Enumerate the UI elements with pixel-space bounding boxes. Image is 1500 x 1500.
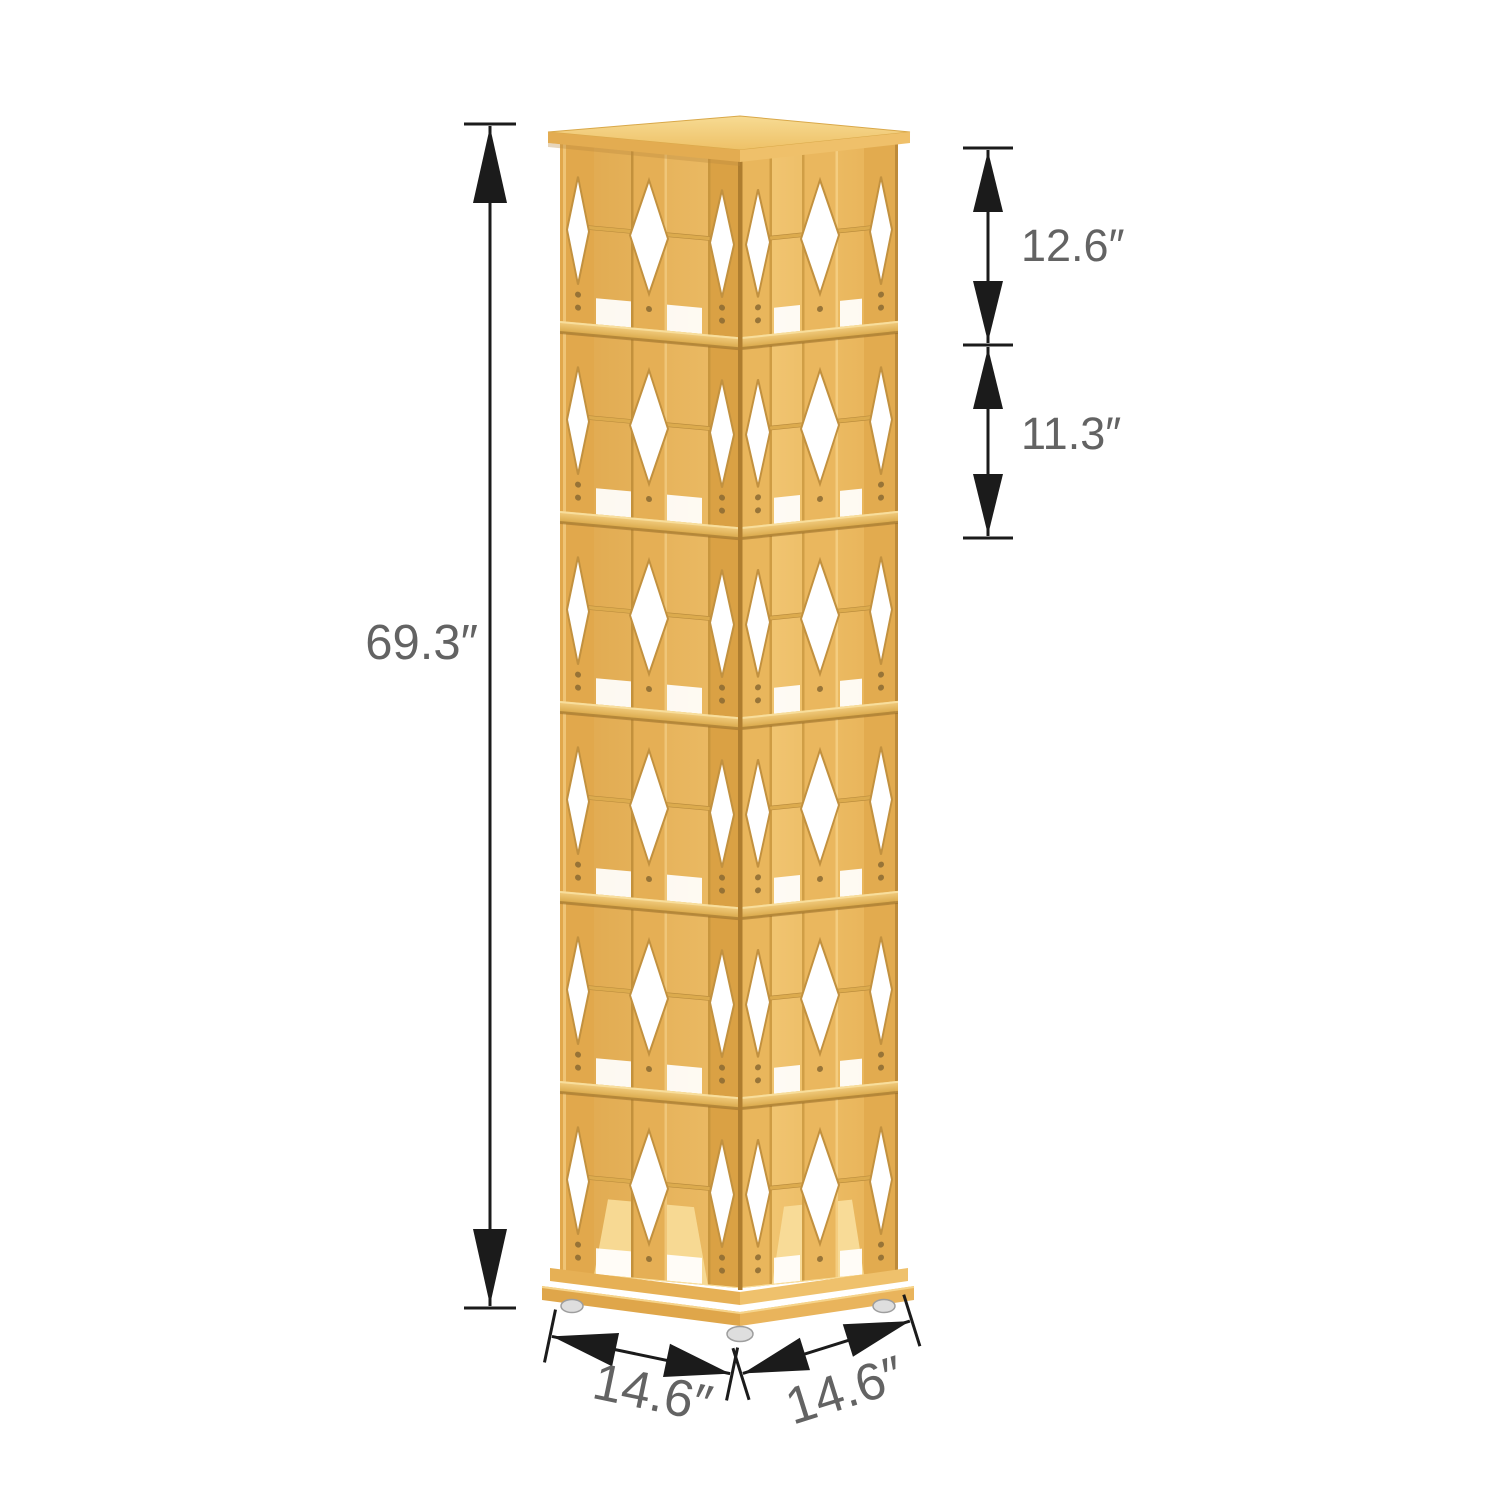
dimension-tick	[733, 1348, 749, 1400]
arrowhead-up	[973, 151, 1003, 212]
height-label: 69.3″	[365, 616, 478, 670]
bookshelf-left-face	[560, 143, 738, 1300]
arrowhead-up	[473, 127, 507, 203]
middle-section-label: 11.3″	[1021, 408, 1121, 459]
arrowhead-down	[973, 281, 1003, 342]
base-width-left-dimension: 14.6″	[537, 1310, 738, 1437]
product-dimension-diagram: 69.3″ 12.6″ 11.3″ 14.6″ 14.6″	[0, 0, 1500, 1500]
top-section-label: 12.6″	[1021, 220, 1125, 271]
arrowhead-down	[973, 474, 1003, 535]
top-section-dimension: 12.6″	[963, 148, 1125, 345]
diagram-svg: 69.3″ 12.6″ 11.3″ 14.6″ 14.6″	[0, 0, 1500, 1500]
foot	[561, 1300, 583, 1313]
bookshelf-illustration	[542, 116, 914, 1342]
arrowhead-up	[973, 348, 1003, 409]
foot	[727, 1327, 753, 1342]
arrowhead-down	[473, 1229, 507, 1305]
corner-edge	[738, 150, 743, 1290]
dimension-tick	[904, 1295, 920, 1347]
foot	[873, 1300, 895, 1313]
bookshelf-right-face	[742, 143, 898, 1300]
height-dimension: 69.3″	[365, 124, 516, 1308]
middle-section-dimension: 11.3″	[963, 347, 1121, 538]
